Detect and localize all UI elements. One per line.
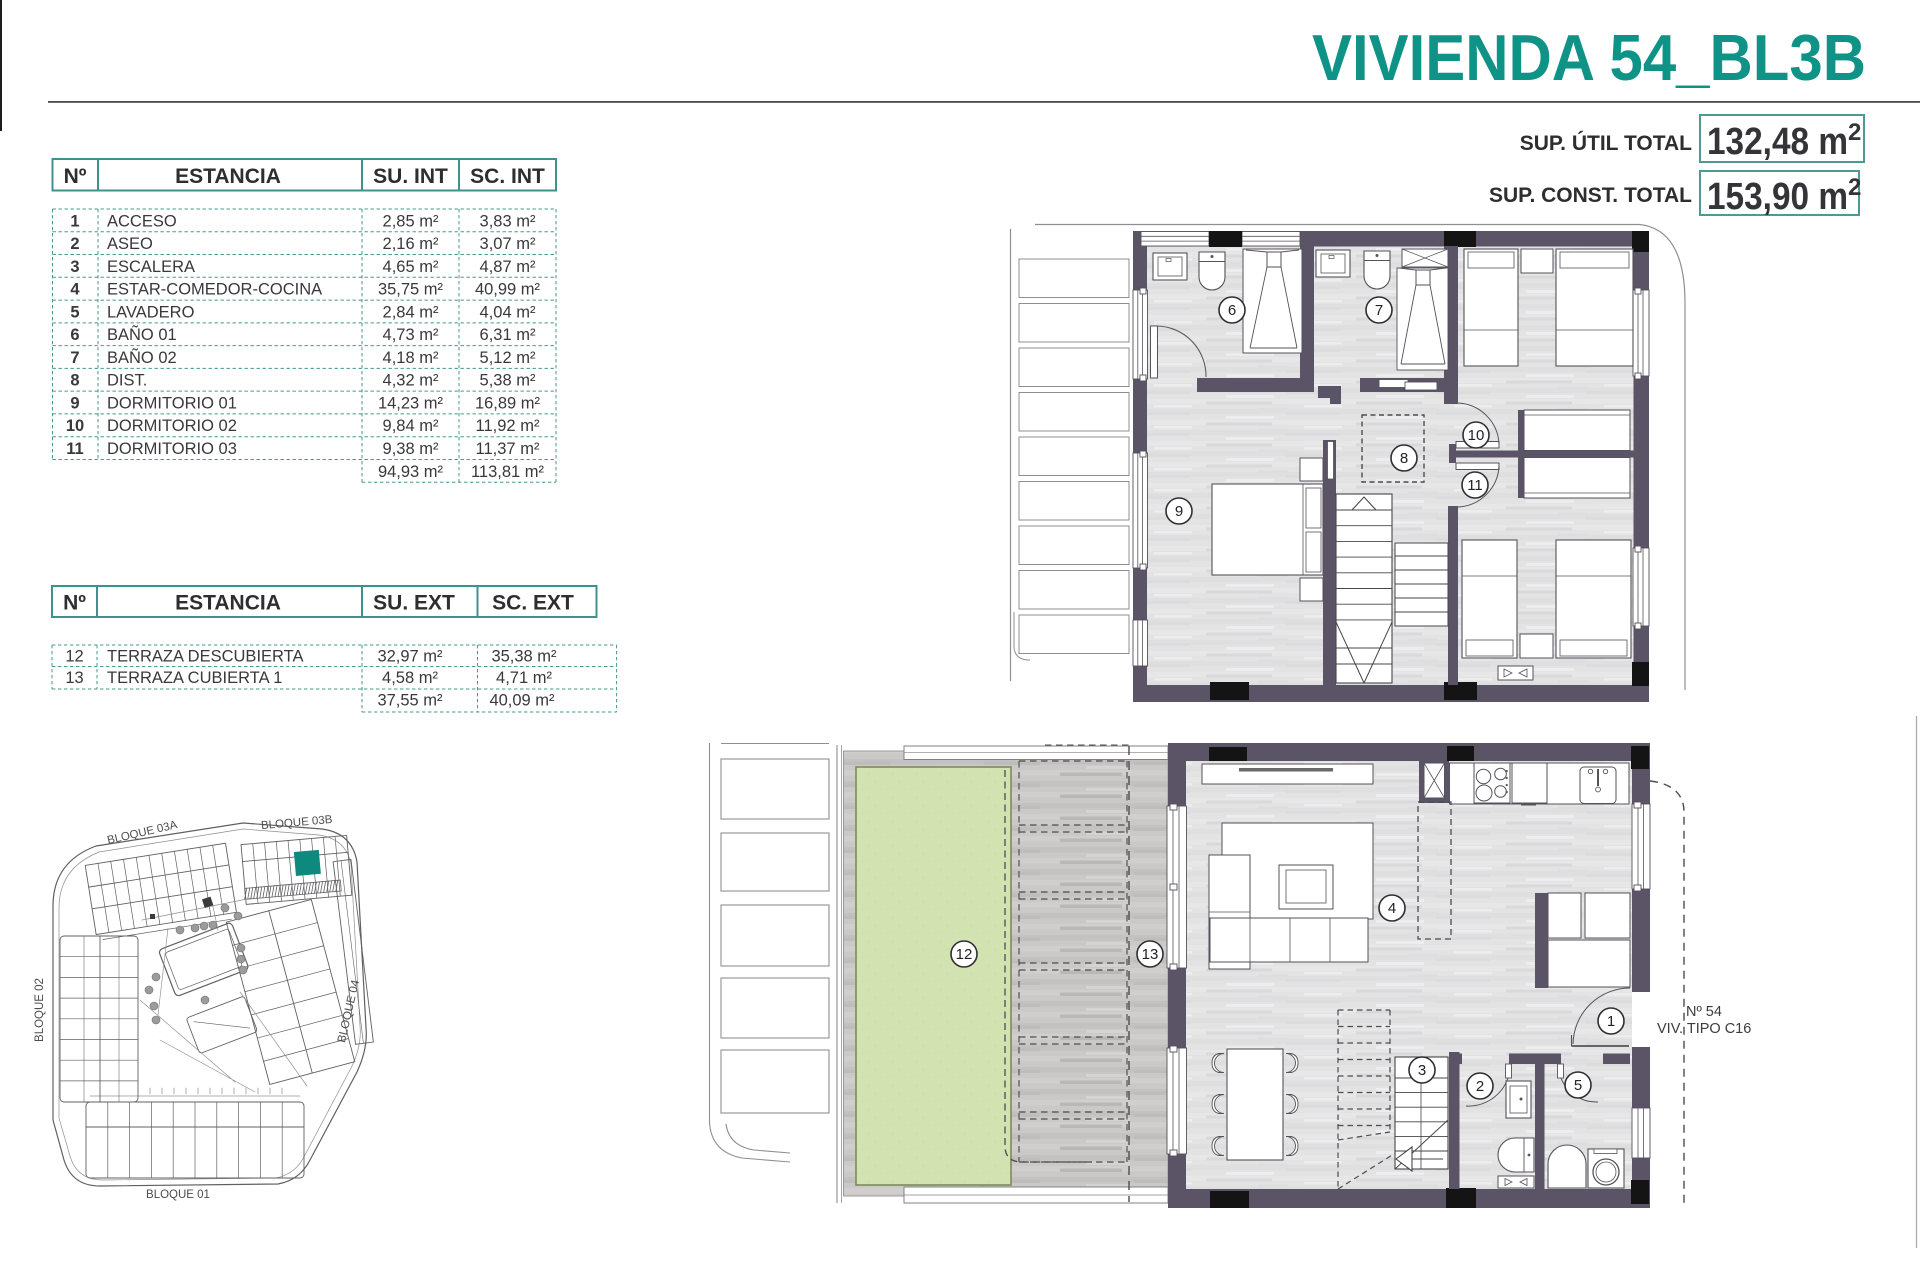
svg-text:8: 8 xyxy=(1400,450,1408,467)
svg-text:10: 10 xyxy=(1468,427,1485,444)
svg-text:Nº 54: Nº 54 xyxy=(1686,1004,1722,1020)
svg-text:12: 12 xyxy=(65,648,83,666)
svg-text:2: 2 xyxy=(1848,119,1861,146)
svg-text:DORMITORIO 01: DORMITORIO 01 xyxy=(107,395,237,413)
svg-text:3: 3 xyxy=(1418,1062,1426,1079)
svg-text:SUP. ÚTIL TOTAL: SUP. ÚTIL TOTAL xyxy=(1520,131,1692,155)
svg-text:4,58 m²: 4,58 m² xyxy=(382,669,438,687)
svg-text:SC. EXT: SC. EXT xyxy=(492,592,574,615)
svg-text:113,81 m²: 113,81 m² xyxy=(471,463,545,481)
svg-text:BAÑO 02: BAÑO 02 xyxy=(107,347,177,367)
svg-text:LAVADERO: LAVADERO xyxy=(107,303,195,321)
svg-text:2,85 m²: 2,85 m² xyxy=(383,212,439,230)
svg-text:7: 7 xyxy=(70,349,79,367)
svg-text:BLOQUE 01: BLOQUE 01 xyxy=(146,1189,210,1201)
svg-text:11,37 m²: 11,37 m² xyxy=(476,440,540,458)
svg-text:12: 12 xyxy=(956,946,973,963)
svg-text:4,65 m²: 4,65 m² xyxy=(383,258,439,276)
svg-text:2: 2 xyxy=(70,235,79,253)
svg-text:153,90 m: 153,90 m xyxy=(1707,176,1848,218)
svg-text:ESCALERA: ESCALERA xyxy=(107,258,195,276)
svg-text:9: 9 xyxy=(1175,503,1183,520)
svg-text:14,23 m²: 14,23 m² xyxy=(378,395,444,413)
svg-text:4,87 m²: 4,87 m² xyxy=(480,258,536,276)
svg-text:11: 11 xyxy=(66,440,83,458)
svg-text:ESTAR-COMEDOR-COCINA: ESTAR-COMEDOR-COCINA xyxy=(107,281,322,299)
svg-text:ESTANCIA: ESTANCIA xyxy=(175,165,281,188)
svg-text:DIST.: DIST. xyxy=(107,372,147,390)
svg-text:4,18 m²: 4,18 m² xyxy=(383,349,439,367)
svg-text:BLOQUE 02: BLOQUE 02 xyxy=(34,978,46,1042)
svg-text:ASEO: ASEO xyxy=(107,235,153,253)
svg-text:2: 2 xyxy=(1848,174,1861,201)
svg-text:5,12 m²: 5,12 m² xyxy=(480,349,536,367)
svg-text:5,38 m²: 5,38 m² xyxy=(480,372,536,390)
svg-text:9: 9 xyxy=(70,395,79,413)
svg-text:TERRAZA DESCUBIERTA: TERRAZA DESCUBIERTA xyxy=(107,648,304,666)
svg-text:37,55 m²: 37,55 m² xyxy=(377,692,443,710)
svg-text:SU. EXT: SU. EXT xyxy=(373,592,455,615)
svg-text:8: 8 xyxy=(70,372,79,390)
svg-text:2,84 m²: 2,84 m² xyxy=(383,303,439,321)
svg-text:4: 4 xyxy=(1388,900,1396,917)
svg-text:DORMITORIO 02: DORMITORIO 02 xyxy=(107,417,237,435)
svg-text:SC. INT: SC. INT xyxy=(470,165,545,188)
svg-text:16,89 m²: 16,89 m² xyxy=(475,395,541,413)
svg-text:5: 5 xyxy=(1574,1077,1582,1094)
svg-text:VIV. TIPO C16: VIV. TIPO C16 xyxy=(1657,1021,1751,1037)
svg-text:11: 11 xyxy=(1467,477,1483,494)
svg-text:9,38 m²: 9,38 m² xyxy=(383,440,439,458)
svg-text:9,84 m²: 9,84 m² xyxy=(383,417,439,435)
svg-text:94,93 m²: 94,93 m² xyxy=(378,463,444,481)
svg-text:ESTANCIA: ESTANCIA xyxy=(175,592,281,615)
svg-text:Nº: Nº xyxy=(64,165,87,188)
svg-text:7: 7 xyxy=(1375,302,1383,319)
svg-text:SU. INT: SU. INT xyxy=(373,165,448,188)
svg-text:4: 4 xyxy=(70,281,80,299)
svg-text:3: 3 xyxy=(70,258,79,276)
svg-text:35,75 m²: 35,75 m² xyxy=(378,281,444,299)
svg-text:4,32 m²: 4,32 m² xyxy=(383,372,439,390)
svg-text:BAÑO 01: BAÑO 01 xyxy=(107,324,177,344)
svg-text:VIVIENDA 54_BL3B: VIVIENDA 54_BL3B xyxy=(1312,21,1866,94)
svg-text:4,73 m²: 4,73 m² xyxy=(383,326,439,344)
svg-text:32,97 m²: 32,97 m² xyxy=(377,648,443,666)
svg-text:10: 10 xyxy=(66,417,84,435)
svg-text:ACCESO: ACCESO xyxy=(107,212,177,230)
svg-text:40,09 m²: 40,09 m² xyxy=(489,692,555,710)
svg-text:2: 2 xyxy=(1476,1078,1484,1095)
svg-text:Nº: Nº xyxy=(63,592,86,615)
svg-text:35,38 m²: 35,38 m² xyxy=(491,648,557,666)
svg-text:1: 1 xyxy=(1607,1013,1615,1030)
svg-text:6,31 m²: 6,31 m² xyxy=(480,326,536,344)
svg-text:4,71 m²: 4,71 m² xyxy=(496,669,552,687)
svg-text:40,99 m²: 40,99 m² xyxy=(475,281,541,299)
svg-text:6: 6 xyxy=(1228,302,1236,319)
svg-text:5: 5 xyxy=(70,303,79,321)
svg-text:13: 13 xyxy=(1142,946,1159,963)
svg-text:13: 13 xyxy=(65,669,83,687)
svg-text:11,92 m²: 11,92 m² xyxy=(476,417,540,435)
svg-text:3,83 m²: 3,83 m² xyxy=(480,212,536,230)
svg-text:1: 1 xyxy=(70,212,79,230)
svg-text:6: 6 xyxy=(70,326,79,344)
svg-text:3,07 m²: 3,07 m² xyxy=(480,235,536,253)
svg-text:2,16 m²: 2,16 m² xyxy=(383,235,439,253)
svg-text:SUP. CONST. TOTAL: SUP. CONST. TOTAL xyxy=(1489,184,1692,207)
svg-text:132,48 m: 132,48 m xyxy=(1707,121,1848,163)
svg-text:4,04 m²: 4,04 m² xyxy=(480,303,536,321)
svg-text:TERRAZA CUBIERTA 1: TERRAZA CUBIERTA 1 xyxy=(107,669,282,687)
svg-text:DORMITORIO 03: DORMITORIO 03 xyxy=(107,440,237,458)
